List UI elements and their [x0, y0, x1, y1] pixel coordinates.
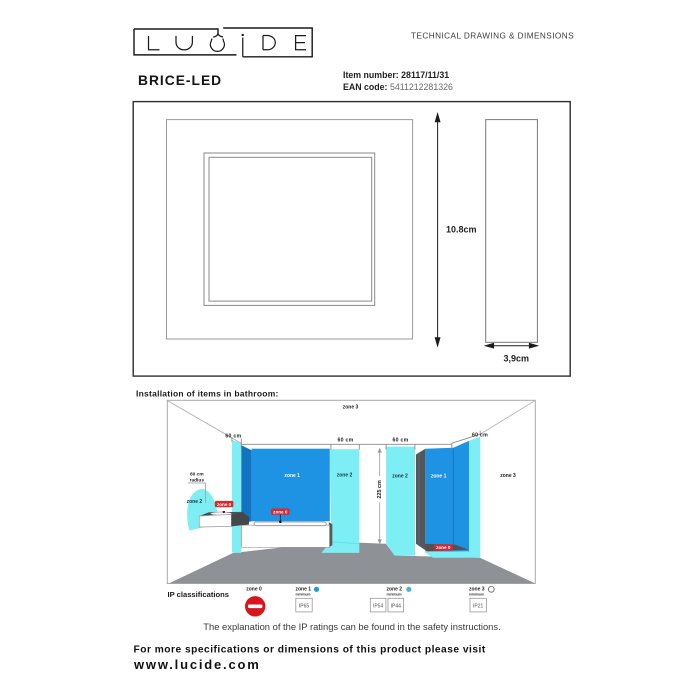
- svg-text:zone 3: zone 3: [500, 473, 516, 479]
- svg-text:zone 2: zone 2: [187, 499, 203, 505]
- svg-text:10.8cm: 10.8cm: [446, 225, 477, 235]
- svg-text:zone 1: zone 1: [296, 587, 312, 593]
- svg-text:radius: radius: [190, 478, 205, 484]
- svg-text:www.lucide.com: www.lucide.com: [133, 657, 261, 672]
- svg-text:Installation of items in bathr: Installation of items in bathroom:: [136, 388, 279, 398]
- svg-text:IP44: IP44: [391, 604, 402, 610]
- svg-text:60 cm: 60 cm: [225, 433, 241, 439]
- svg-text:IP21: IP21: [473, 604, 484, 610]
- svg-text:zone 3: zone 3: [469, 587, 485, 593]
- svg-text:The explanation of the IP rati: The explanation of the IP ratings can be…: [203, 621, 500, 632]
- svg-text:TECHNICAL DRAWING & DIMENSIONS: TECHNICAL DRAWING & DIMENSIONS: [411, 32, 574, 41]
- svg-text:zone 1: zone 1: [284, 473, 300, 479]
- svg-text:minimum: minimum: [296, 593, 311, 597]
- svg-text:zone 0: zone 0: [436, 545, 451, 550]
- svg-text:Item number: 28117/11/31: Item number: 28117/11/31: [343, 70, 449, 80]
- svg-text:zone 2: zone 2: [392, 474, 408, 480]
- svg-text:zone 0: zone 0: [273, 510, 288, 515]
- svg-text:60 cm: 60 cm: [472, 433, 488, 439]
- svg-text:EAN code: 5411212281326: EAN code: 5411212281326: [343, 82, 453, 92]
- svg-text:225 cm: 225 cm: [377, 480, 383, 498]
- svg-text:60 cm: 60 cm: [190, 472, 204, 478]
- svg-text:3,9cm: 3,9cm: [504, 354, 530, 364]
- svg-text:IP classifications: IP classifications: [168, 590, 229, 599]
- svg-text:zone 0: zone 0: [217, 502, 232, 507]
- svg-text:minimum: minimum: [469, 593, 484, 597]
- svg-text:zone 2: zone 2: [337, 472, 353, 478]
- svg-text:For more specifications or dim: For more specifications or dimensions of…: [134, 644, 486, 655]
- svg-text:zone 0: zone 0: [246, 586, 262, 592]
- svg-text:zone 1: zone 1: [431, 474, 447, 480]
- svg-text:zone 2: zone 2: [387, 587, 403, 593]
- svg-text:60 cm: 60 cm: [393, 437, 409, 443]
- svg-text:60 cm: 60 cm: [338, 437, 354, 443]
- svg-text:BRICE-LED: BRICE-LED: [138, 73, 222, 88]
- svg-text:zone 3: zone 3: [343, 405, 359, 411]
- svg-text:minimum: minimum: [387, 593, 402, 597]
- svg-text:IP54: IP54: [373, 604, 384, 610]
- svg-text:IP65: IP65: [299, 604, 310, 610]
